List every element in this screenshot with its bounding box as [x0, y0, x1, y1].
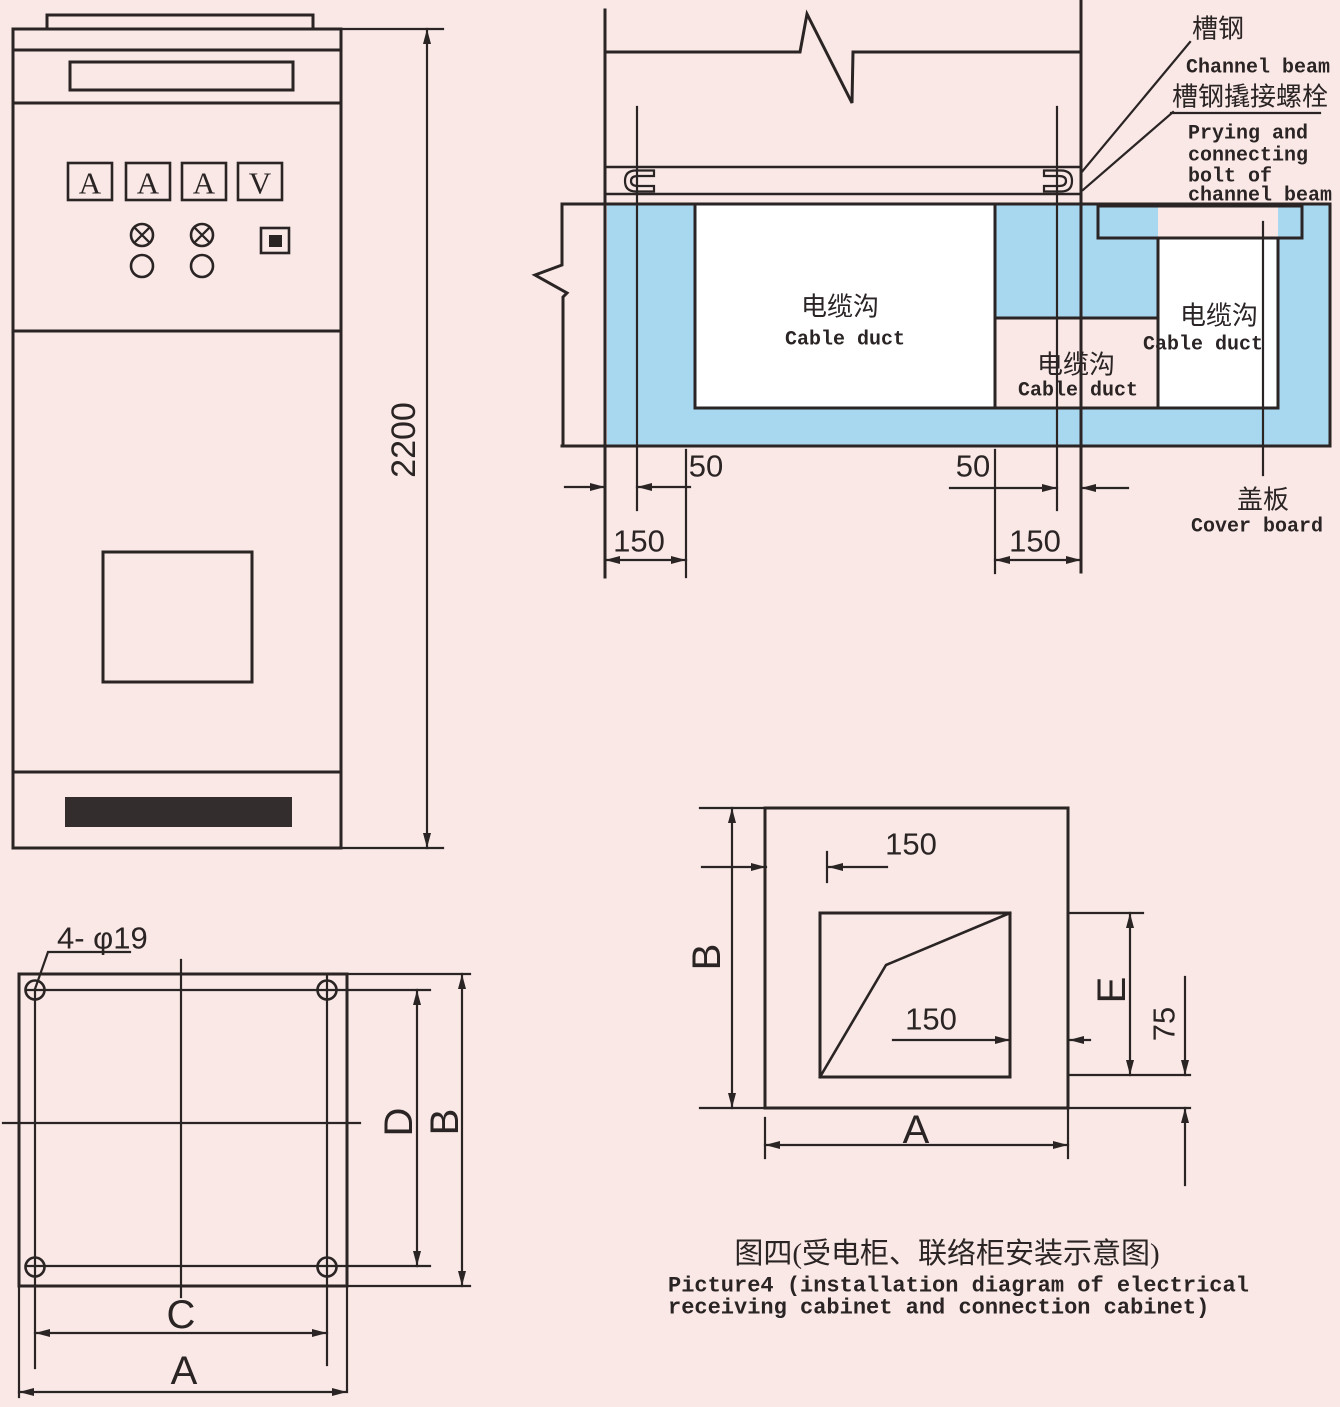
dim-E-value: E: [1090, 977, 1134, 1004]
channel-beam-label-cn: 槽钢: [1192, 15, 1244, 44]
installation-diagram-page: A A A V 2200: [0, 0, 1340, 1407]
bolt-label-cn: 槽钢撬接螺栓: [1172, 83, 1328, 112]
floor-left-break: [535, 204, 567, 446]
dim-B-value: B: [423, 1109, 467, 1136]
cabinet-top-cap: [47, 15, 313, 29]
channel-beam-band: [605, 167, 1081, 194]
hole-row-lines: [26, 990, 430, 1266]
hole-callout-leader: [35, 952, 130, 989]
ammeter-label: A: [79, 166, 102, 201]
cover-board-label-en: Cover board: [1191, 516, 1323, 539]
ammeter-label: A: [193, 166, 216, 201]
duct-opening-outline: [820, 913, 1010, 1077]
ventilation-grille: [65, 797, 292, 827]
door-window: [103, 552, 252, 682]
dim-150-inner-value: 150: [905, 1002, 957, 1037]
dim-D-value: D: [377, 1108, 421, 1137]
concrete-floor-strip: [695, 408, 1330, 445]
duct-section-view: 50 150 50 150 槽钢 Channel beam 槽钢撬接螺栓 Pry…: [535, 0, 1332, 577]
concrete-wall-middle: [995, 205, 1158, 318]
dim-150-value: 150: [885, 827, 937, 862]
cable-duct-label-en: Cable duct: [1143, 334, 1263, 357]
bolt-leader: [1083, 112, 1173, 190]
dim-150-value: 150: [613, 524, 665, 559]
dim-C-value: C: [167, 1293, 196, 1337]
bolt-label-en-line4: channel beam: [1188, 185, 1332, 208]
technical-drawing-svg: A A A V 2200: [0, 0, 1340, 1407]
duct-opening-plan-view: 150 150 B E 75 A: [685, 808, 1190, 1185]
dim-75-value: 75: [1147, 1007, 1182, 1041]
bolt-label-en-line1: Prying and: [1188, 123, 1308, 146]
cable-duct-label-en: Cable duct: [785, 329, 905, 352]
cable-duct-label-cn: 电缆沟: [1180, 302, 1258, 331]
figure-caption: 图四(受电柜、联络柜安装示意图) Picture4 (installation …: [668, 1237, 1249, 1321]
dim-A-value: A: [903, 1108, 930, 1152]
channel-beam-label-en: Channel beam: [1186, 57, 1330, 80]
cabinet-top-break-line: [605, 14, 1081, 103]
dim-A-value: A: [171, 1349, 198, 1393]
concrete-wall-left: [607, 205, 695, 445]
dim-B-value: B: [685, 944, 729, 971]
caption-chinese: 图四(受电柜、联络柜安装示意图): [734, 1237, 1159, 1270]
concrete-wall-right: [1278, 205, 1330, 445]
height-dimension-value: 2200: [385, 402, 423, 478]
dim-150-value: 150: [1009, 524, 1061, 559]
cabinet-outline: [13, 29, 341, 848]
center-lines: [3, 960, 360, 1297]
base-frame-outline: [19, 974, 347, 1286]
pushbutton-icon: [191, 255, 213, 277]
opening-diagonal-mark: [820, 913, 1010, 1077]
indicator-lamp-icon: [131, 224, 153, 246]
cable-duct-label-cn: 电缆沟: [801, 293, 879, 322]
channel-steel-icon: [625, 171, 654, 192]
cabinet-front-view: A A A V 2200: [13, 15, 443, 848]
foundation-plan-view: D B C A 4- φ19: [3, 921, 470, 1398]
square-button-icon: [261, 228, 289, 253]
cable-duct-label-cn: 电缆沟: [1037, 351, 1115, 380]
pushbutton-icon: [131, 255, 153, 277]
ammeter-label: A: [137, 166, 160, 201]
caption-english-line2: receiving cabinet and connection cabinet…: [668, 1296, 1209, 1321]
cover-board-label-cn: 盖板: [1237, 486, 1289, 515]
voltmeter-label: V: [249, 166, 272, 201]
indicator-lamp-icon: [191, 224, 213, 246]
dim-50-value: 50: [689, 449, 723, 484]
bolt-label-en-line2: connecting: [1188, 145, 1308, 168]
hole-callout-label: 4- φ19: [57, 921, 148, 956]
dim-50-value: 50: [956, 449, 990, 484]
cable-duct-label-en: Cable duct: [1018, 380, 1138, 403]
nameplate: [70, 62, 293, 90]
